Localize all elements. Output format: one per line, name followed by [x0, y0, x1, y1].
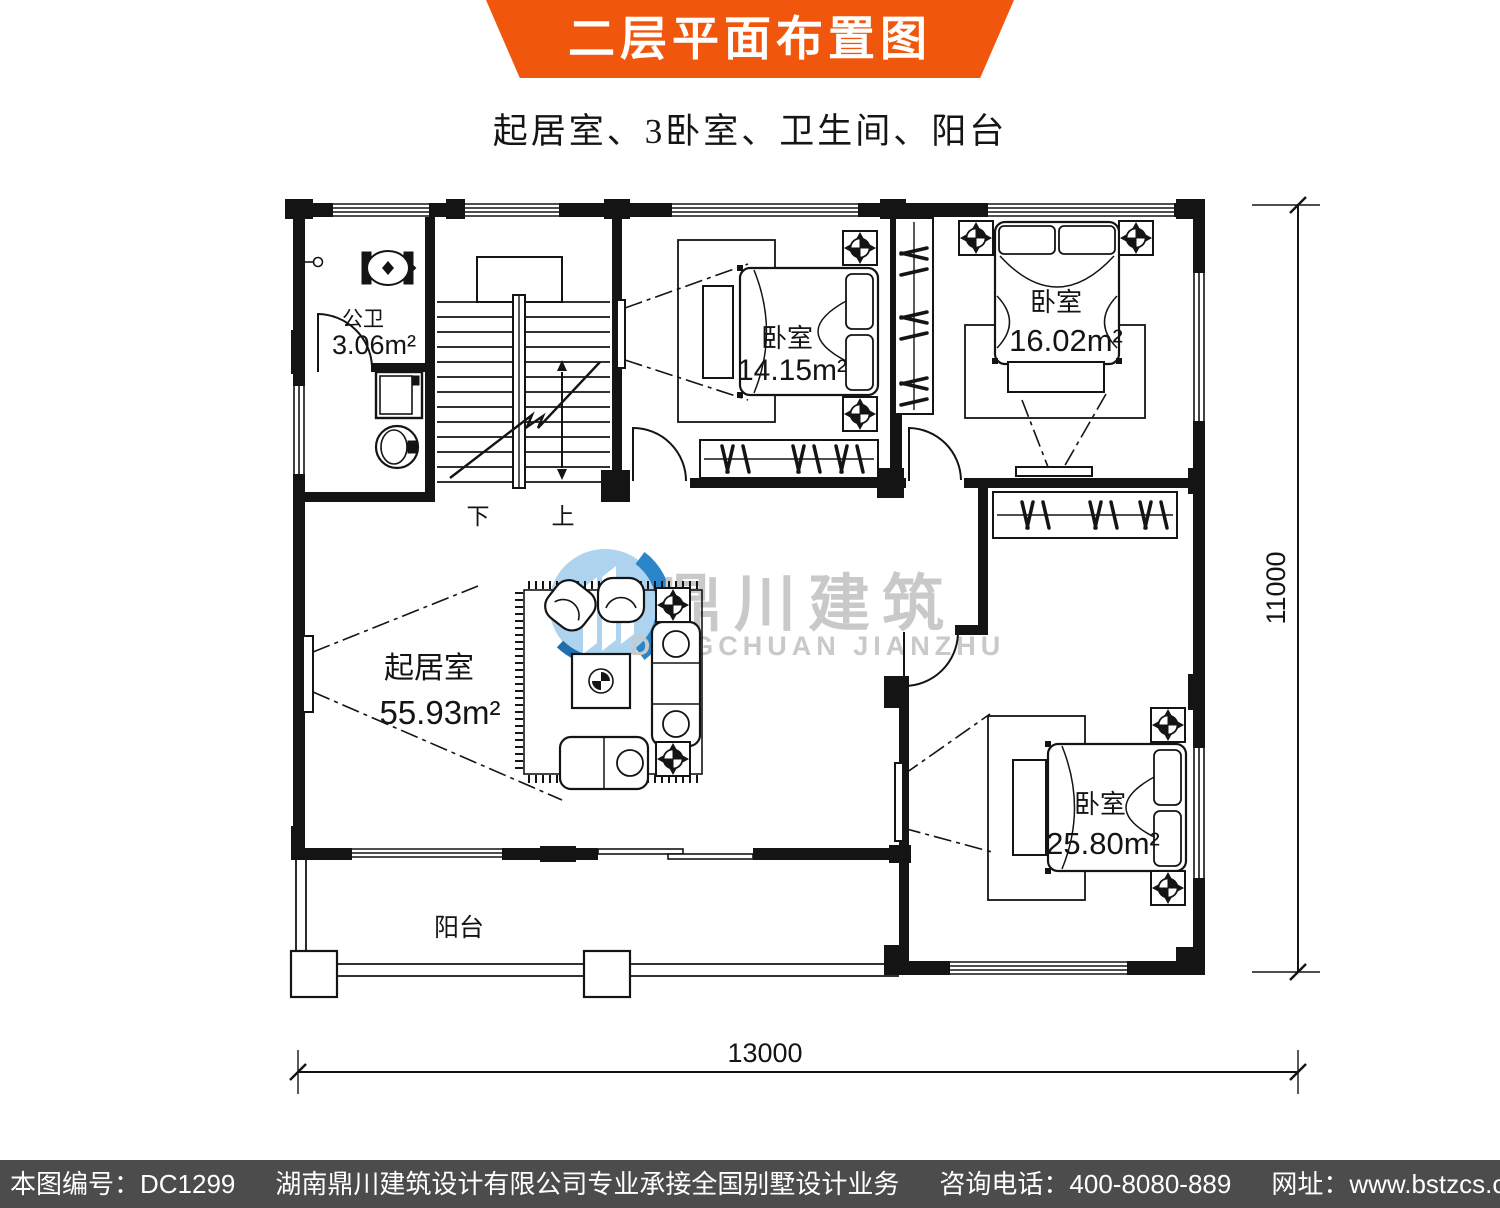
coffee-table — [572, 654, 630, 708]
side-table-lamp-icon — [656, 588, 690, 622]
floor-drain-icon — [314, 258, 323, 267]
footer-bar: 本图编号：DC1299 湖南鼎川建筑设计有限公司专业承接全国别墅设计业务 咨询电… — [0, 1160, 1500, 1208]
nightstand-lamp-icon — [1151, 871, 1185, 905]
living-room-furniture — [303, 574, 702, 800]
balcony-railing — [291, 860, 899, 997]
bedroom-right-label: 卧室 — [1030, 287, 1082, 317]
armchair — [598, 578, 644, 622]
page: 二层平面布置图 起居室、3卧室、卫生间、阳台 — [0, 0, 1500, 1208]
bathroom-label: 公卫 — [342, 308, 384, 331]
balcony-label: 阳台 — [434, 914, 484, 942]
living-room-area: 55.93m² — [379, 694, 500, 731]
wardrobe — [895, 218, 933, 414]
footer-company: 湖南鼎川建筑设计有限公司专业承接全国别墅设计业务 — [275, 1160, 899, 1208]
nightstand-lamp-icon — [959, 221, 993, 255]
bathroom-area: 3.06m² — [332, 330, 416, 360]
toilet-icon — [362, 251, 415, 285]
washing-machine-icon — [376, 372, 422, 418]
stairs-up-label: 上 — [552, 503, 575, 529]
nightstand-lamp-icon — [1119, 221, 1153, 255]
tv-icon — [1016, 467, 1092, 476]
stairs-down-label: 下 — [467, 503, 490, 529]
dimension-width-label: 13000 — [727, 1038, 802, 1068]
nightstand-lamp-icon — [843, 231, 877, 265]
bedroom-bottom-area: 25.80m² — [1046, 826, 1160, 861]
sink-icon — [376, 426, 418, 468]
dimension-height-label: 11000 — [1261, 551, 1291, 624]
living-room-label: 起居室 — [384, 652, 474, 685]
bedroom-right-door — [909, 428, 961, 481]
wardrobe — [993, 492, 1177, 538]
loveseat — [560, 737, 648, 789]
footer-plan-no: 本图编号：DC1299 — [10, 1160, 235, 1208]
wardrobe — [700, 440, 878, 478]
nightstand-lamp-icon — [1151, 708, 1185, 742]
footer-phone: 咨询电话：400-8080-889 — [939, 1160, 1231, 1208]
bedroom-bottom-label: 卧室 — [1074, 789, 1126, 819]
footer-website[interactable]: 网址：www.bstzcs.com — [1271, 1160, 1500, 1208]
stairs — [437, 257, 610, 488]
bedroom-top-door — [633, 428, 686, 481]
side-table-lamp-icon — [656, 742, 690, 776]
watermark-brand: 鼎川建筑 — [660, 570, 956, 639]
bedroom-right-area: 16.02m² — [1009, 323, 1123, 358]
tv-icon — [303, 636, 313, 712]
bedroom-top-label: 卧室 — [761, 323, 813, 353]
sofa — [652, 622, 700, 746]
nightstand-lamp-icon — [843, 397, 877, 431]
tv-icon — [895, 763, 903, 841]
tv-icon — [617, 300, 625, 368]
bedroom-top-area: 14.15m² — [737, 354, 847, 387]
floor-plan: 鼎川建筑 DINGCHUAN JIANZHU — [0, 0, 1500, 1208]
